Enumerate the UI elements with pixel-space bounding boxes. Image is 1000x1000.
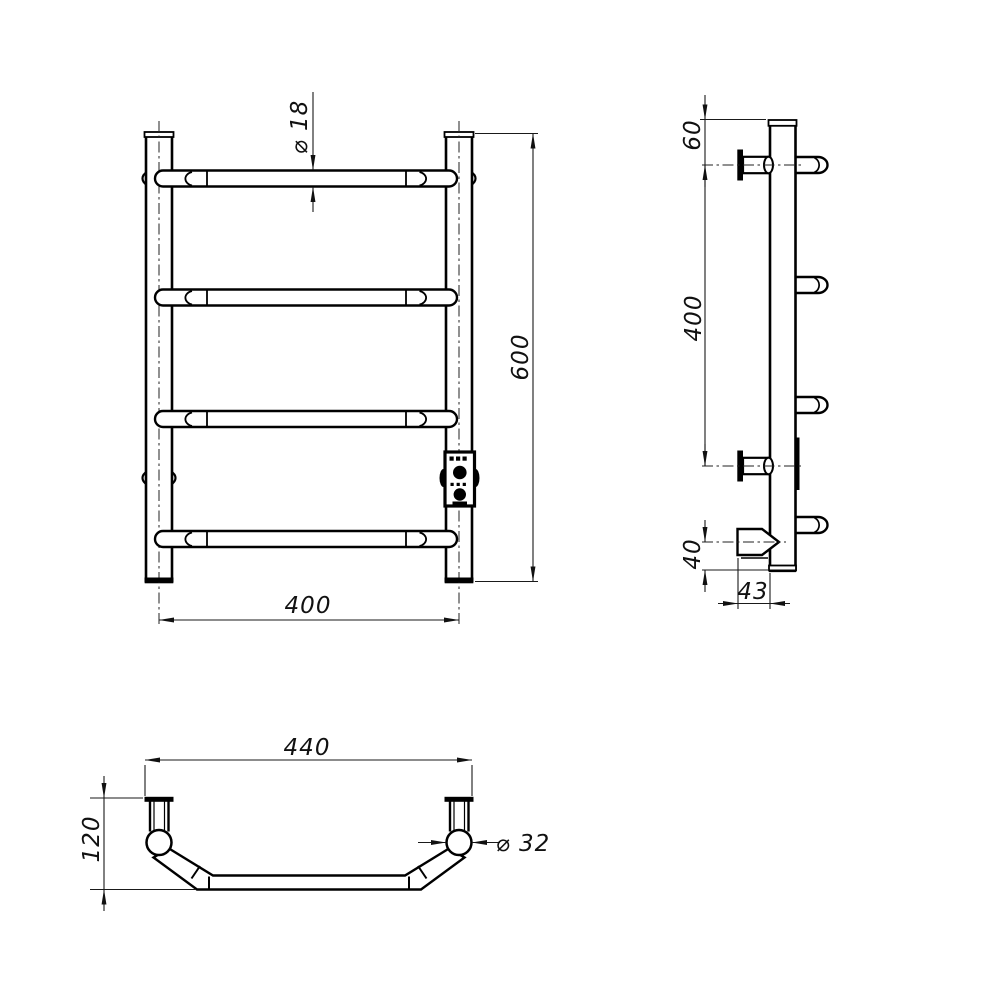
dim-label-bracket-depth: 43 [737,579,768,605]
stub-3 [796,397,828,413]
panel-led-icon [456,457,460,461]
panel-dot-icon [463,483,466,486]
dim-label-bar-diameter: ⌀ 18 [287,100,313,154]
dim-label-depth: 120 [79,816,105,863]
dim-top-offset-and-span: 60 400 [680,95,766,466]
dim-width: 400 [159,593,459,620]
panel-dot-icon [451,483,454,486]
post-profile [770,122,796,570]
panel-button-top-icon [453,466,467,480]
dim-depth: 120 [79,776,196,911]
post-section-right [447,830,472,855]
dim-label-bottom-offset: 40 [680,538,706,569]
wall-bracket-plan-left [145,797,174,832]
dim-post-diameter: ⌀ 32 [418,831,550,857]
post-profile-top-cap [769,120,797,126]
post-right-bottom-cap [445,578,474,583]
panel-led-icon [450,457,454,461]
dim-label-overall-width: 440 [284,735,331,761]
panel-led-icon [463,457,467,461]
wall-bracket-plan-right [445,797,474,832]
panel-dot-icon [457,483,460,486]
dim-label-bracket-span: 400 [681,295,707,342]
dim-overall-width: 440 [145,735,472,796]
rung-1 [155,171,457,187]
dim-label-width: 400 [285,593,332,619]
rung-3 [155,411,457,427]
technical-drawing-canvas: ⌀ 18 600 400 [0,0,1000,1000]
dim-label-post-diameter: ⌀ 32 [496,831,550,857]
dim-label-height: 600 [508,334,534,381]
stub-4 [796,517,828,533]
panel-slot-icon [453,502,468,506]
dim-height: 600 [475,134,538,582]
dim-label-top-offset: 60 [680,119,706,150]
drawing-page: ⌀ 18 600 400 [0,0,1000,1000]
control-panel [440,452,480,506]
plan-view: 440 120 ⌀ 32 [79,735,550,911]
dim-bar-diameter: ⌀ 18 [287,92,313,212]
panel-button-bottom-icon [454,488,466,500]
post-left-bottom-cap [145,578,174,583]
rung-4 [155,531,457,547]
bent-rung-tube [154,849,465,890]
post-section-left [147,830,172,855]
control-panel-side-profile [795,438,800,491]
side-view: 60 400 40 43 [680,95,828,609]
stub-2 [796,277,828,293]
rung-2 [155,290,457,306]
front-view: ⌀ 18 600 400 [143,92,539,627]
